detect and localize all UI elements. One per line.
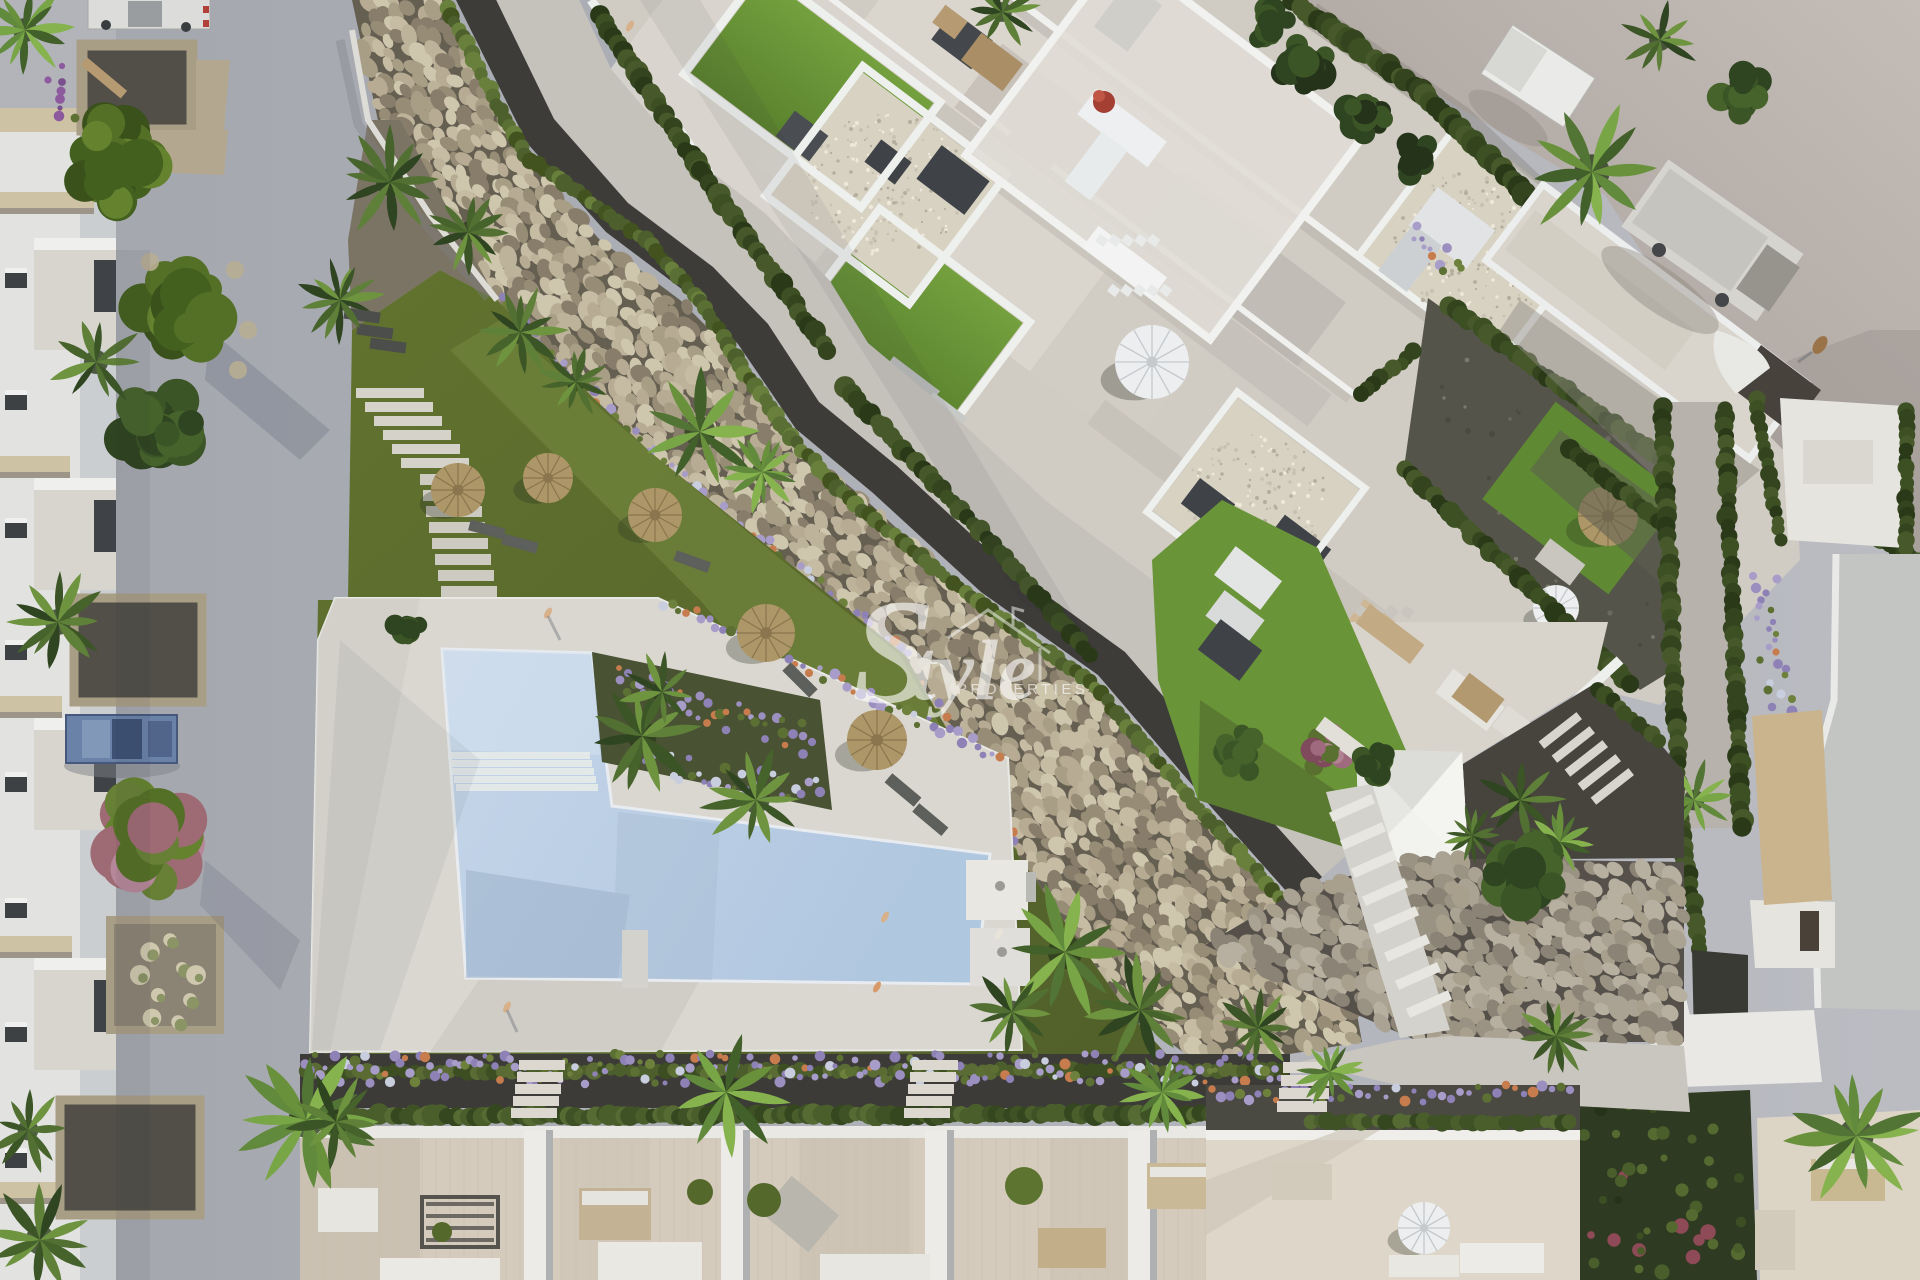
svg-text:tyle: tyle bbox=[912, 622, 1036, 718]
svg-text:PROPERTIES: PROPERTIES bbox=[957, 681, 1088, 698]
